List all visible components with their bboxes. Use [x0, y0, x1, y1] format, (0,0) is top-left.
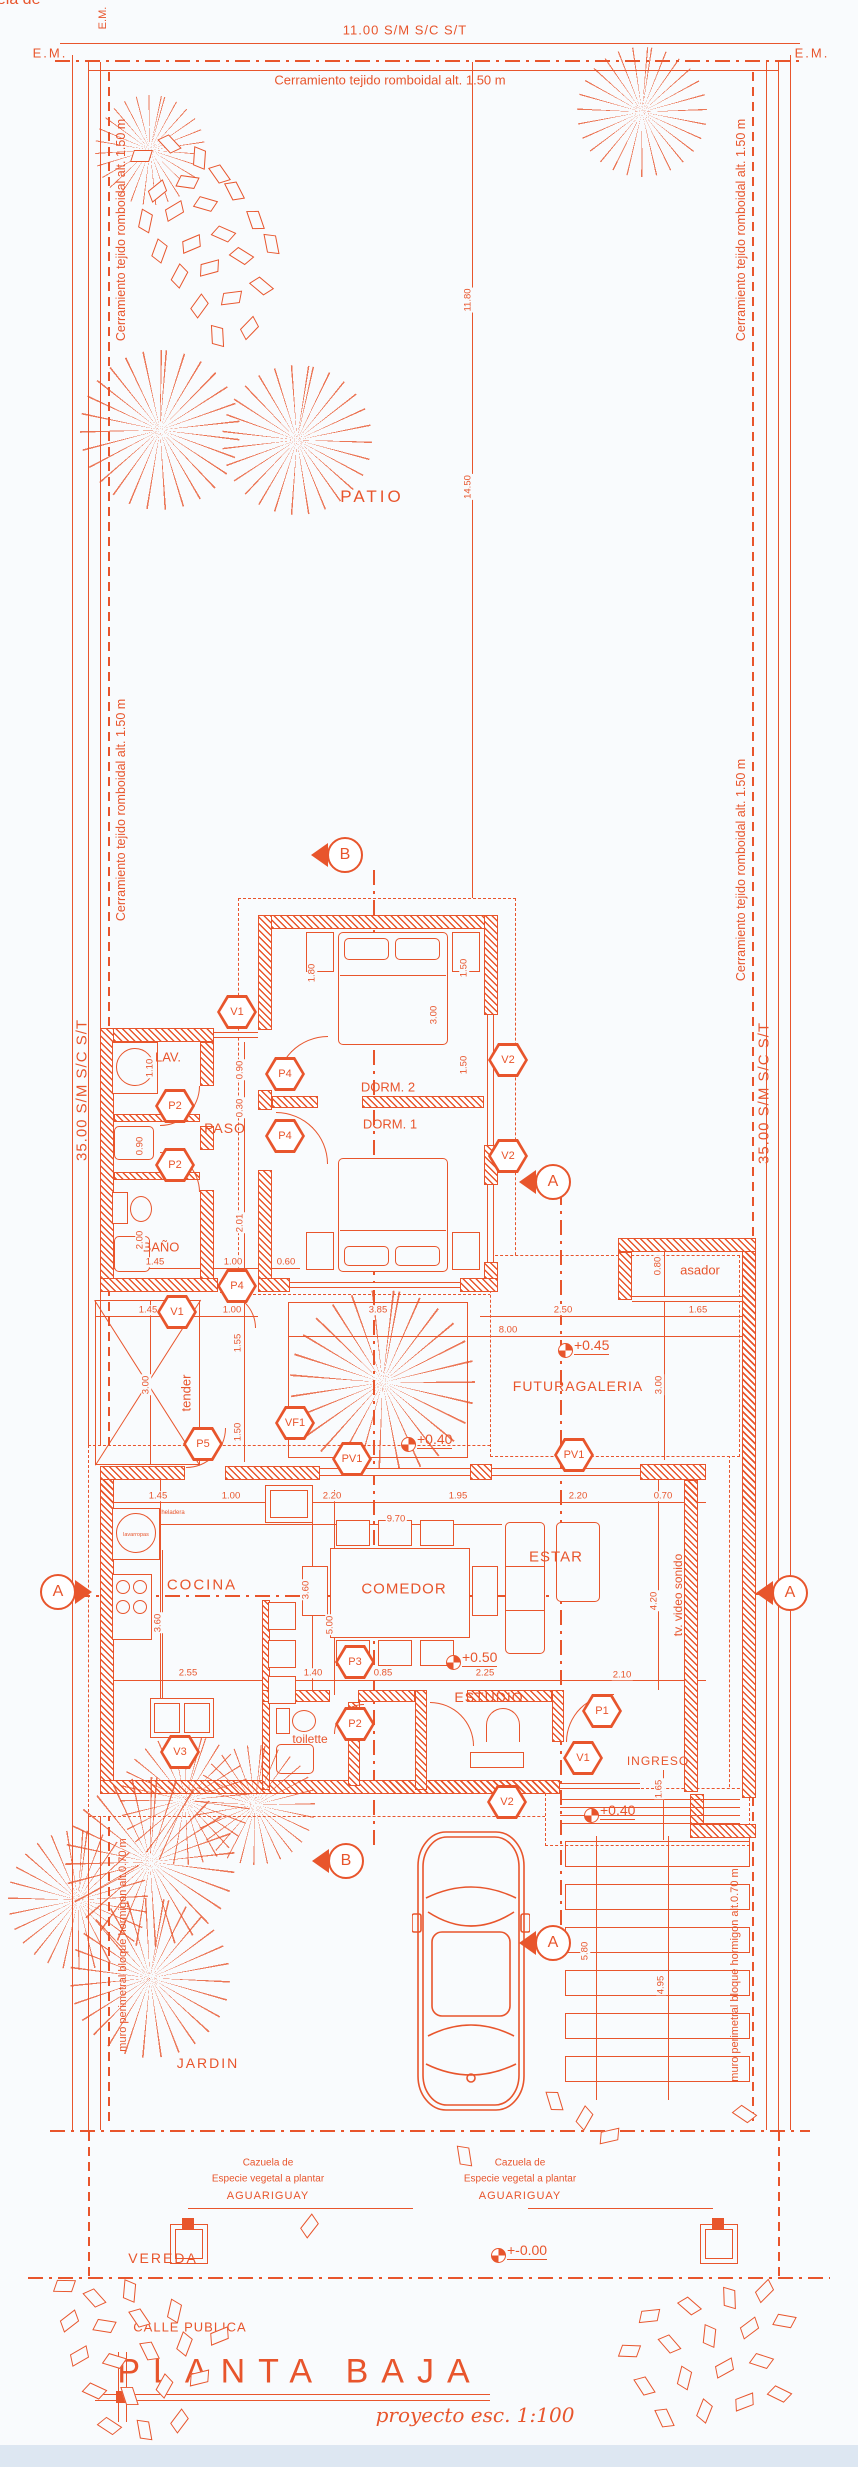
- street-label: CALLE PUBLICA: [133, 2320, 246, 2335]
- fridge-inner: [270, 1490, 308, 1518]
- leaf-icon: [735, 2392, 753, 2411]
- level-mark: +0.40: [584, 1808, 599, 1823]
- opening-tag-pv1: PV1: [554, 1438, 594, 1472]
- level-icon: [491, 2248, 506, 2263]
- pillow: [344, 938, 389, 960]
- property-line: [55, 60, 800, 62]
- section-marker-a: A: [535, 1925, 571, 1961]
- toilet-tank: [276, 1708, 290, 1734]
- title-rule: [95, 2400, 490, 2401]
- leaf-icon: [170, 2408, 189, 2434]
- wall: [200, 1042, 214, 1086]
- wall: [258, 1278, 290, 1292]
- leaf-icon: [654, 2409, 675, 2428]
- leaf-icon: [128, 2308, 151, 2327]
- lot-line: [88, 70, 778, 71]
- wall: [690, 1824, 756, 1838]
- wall: [640, 1464, 706, 1480]
- pillow: [395, 938, 440, 960]
- dimension-line: [480, 1316, 742, 1317]
- leaf-icon: [715, 2357, 734, 2379]
- opening-tag-p4: P4: [217, 1269, 257, 1303]
- chair: [420, 1520, 454, 1546]
- dimension-label: 3.60: [153, 1613, 163, 1634]
- wall: [484, 915, 498, 1015]
- fence-note: Cerramiento tejido romboidal alt. 1.50 m: [734, 119, 748, 341]
- dimension-label: 2.55: [178, 1668, 199, 1678]
- chair: [378, 1640, 412, 1666]
- car: [412, 1828, 530, 2114]
- opening-tag-v1: V1: [157, 1295, 197, 1329]
- nightstand: [452, 1232, 480, 1270]
- title-rule: [95, 2394, 490, 2395]
- leaf-icon: [755, 2279, 774, 2304]
- perimeter-wall-note: muro perimetral bloque hormigon alt.0.70…: [729, 1868, 741, 2081]
- planter-marker: [182, 2218, 194, 2230]
- room-label-patio: PATIO: [340, 487, 404, 507]
- burner: [133, 1580, 147, 1594]
- room-label-comedor: COMEDOR: [361, 1581, 446, 1598]
- paver-strip: [565, 2013, 750, 2039]
- dimension-label: 1.50: [459, 1055, 469, 1076]
- window: [214, 1032, 258, 1038]
- wall: [100, 1466, 185, 1480]
- leader-line: [528, 2208, 713, 2209]
- leader-line: [188, 2208, 413, 2209]
- dimension-label: 1.45: [138, 1305, 159, 1315]
- burner: [116, 1580, 130, 1594]
- fence-line: [752, 72, 754, 2126]
- track-line: [596, 1836, 597, 2100]
- section-arrow-icon: [519, 1170, 536, 1194]
- leaf-icon: [657, 2334, 681, 2353]
- blanket-line: [340, 1230, 446, 1231]
- level-icon: [584, 1808, 599, 1823]
- opening-tag-v2: V2: [487, 1785, 527, 1819]
- dimension-label: 0.90: [135, 1136, 145, 1157]
- side-dimension-label: 35.00 S/M S/C S/T: [74, 1019, 91, 1161]
- sink-basin: [184, 1703, 210, 1733]
- dimension-label: 1.00: [223, 1257, 244, 1267]
- window: [290, 1282, 460, 1288]
- counter-stool: [268, 1602, 296, 1630]
- leaf-icon: [82, 2382, 108, 2399]
- dimension-label: 2.20: [322, 1491, 343, 1501]
- sofa-cushion-line: [506, 1610, 544, 1611]
- fence-note: Cerramiento tejido romboidal alt. 1.50 m: [114, 699, 128, 921]
- leaf-icon: [130, 150, 153, 162]
- toilet-bowl: [292, 1710, 316, 1732]
- leaf-icon: [767, 2385, 793, 2402]
- room-label-dorm2: DORM. 2: [361, 1080, 415, 1095]
- level-mark: +-0.00: [491, 2248, 506, 2263]
- wall: [362, 1096, 484, 1108]
- dimension-label: 1.45: [145, 1257, 166, 1267]
- planting-note: Cazuela de: [495, 2158, 546, 2169]
- opening-tag-vf1: VF1: [275, 1406, 315, 1440]
- dimension-line: [790, 55, 791, 2130]
- dimension-label: 1.00: [222, 1305, 243, 1315]
- section-marker-a: A: [772, 1575, 808, 1611]
- leaf-icon: [723, 2287, 736, 2309]
- toilet-bowl: [130, 1196, 152, 1222]
- fence-note: Cerramiento tejido romboidal alt. 1.50 m: [274, 73, 505, 88]
- leaf-icon: [92, 2319, 116, 2333]
- dimension-line: [664, 1240, 665, 1460]
- opening-tag-v2: V2: [488, 1043, 528, 1077]
- dimension-label: 4.20: [649, 1591, 659, 1612]
- burner: [133, 1600, 147, 1614]
- toilet-tank: [112, 1192, 128, 1224]
- section-arrow-icon: [75, 1580, 92, 1604]
- municipal-line: [50, 2130, 810, 2132]
- dimension-label: 3.60: [301, 1580, 311, 1601]
- dimension-line: [658, 1480, 659, 1690]
- dimension-label: 5.80: [580, 1941, 590, 1962]
- dimension-label: 8.00: [498, 1325, 519, 1335]
- dimension-label: 1.00: [221, 1491, 242, 1501]
- dimension-label: 1.50: [233, 1422, 243, 1443]
- dimension-label: 1.50: [459, 958, 469, 979]
- sink-basin: [154, 1703, 180, 1733]
- opening-tag-p2: P2: [155, 1089, 195, 1123]
- opening-tag-p2: P2: [335, 1707, 375, 1741]
- paver-strip: [565, 1841, 750, 1867]
- wall: [552, 1690, 564, 1742]
- wall: [100, 1278, 218, 1292]
- front-dimension-label: 11.00 S/M S/C S/T: [343, 23, 467, 38]
- leaf-icon: [53, 2280, 76, 2292]
- opening-tag-v3: V3: [160, 1735, 200, 1769]
- wall: [618, 1238, 756, 1252]
- planting-note: AGUARIGUAY: [227, 2190, 310, 2202]
- leaf-icon: [60, 2309, 79, 2333]
- dimension-label: 0.80: [653, 1256, 663, 1277]
- room-label-estudio: ESTUDIO: [454, 1689, 523, 1705]
- wall: [258, 1090, 272, 1110]
- wall: [358, 1690, 415, 1702]
- level-icon: [558, 1343, 573, 1358]
- blanket-line: [340, 975, 446, 976]
- dimension-line: [288, 1336, 742, 1337]
- floor-plan-drawing: 11.00 S/M S/C S/T E.M. E.M. E.M. Cerrami…: [0, 0, 858, 2467]
- leaf-icon: [137, 2420, 153, 2440]
- dimension-line: [112, 1502, 706, 1503]
- window: [487, 1015, 494, 1145]
- leaf-icon: [772, 2314, 797, 2328]
- dimension-label: 1.65: [688, 1305, 709, 1315]
- wall: [200, 1190, 214, 1292]
- leaf-icon: [457, 2146, 472, 2167]
- opening-tag-p5: P5: [183, 1427, 223, 1461]
- level-mark: +0.45: [558, 1343, 573, 1358]
- roof-eave-outline: [490, 1255, 740, 1457]
- opening-tag-v1: V1: [217, 995, 257, 1029]
- dimension-label: 0.85: [373, 1668, 394, 1678]
- leaf-icon: [740, 2316, 759, 2339]
- section-arrow-icon: [311, 843, 328, 867]
- leaf-icon: [123, 2279, 136, 2303]
- nightstand: [306, 1232, 334, 1270]
- sofa-cushion-line: [506, 1566, 544, 1567]
- sidewalk-label: VEREDA: [128, 2250, 198, 2266]
- wall: [684, 1480, 698, 1792]
- tree-planter-inner: [705, 2229, 733, 2259]
- room-label-jardin: JARDIN: [177, 2055, 240, 2071]
- room-label-cocina: COCINA: [167, 1577, 237, 1594]
- opening-tag-p1: P1: [582, 1694, 622, 1728]
- lot-line-extension: [778, 2132, 780, 2282]
- chair: [336, 1520, 370, 1546]
- room-label-estar: ESTAR: [529, 1549, 583, 1566]
- pillow: [395, 1246, 440, 1266]
- tv-note: tv. video sonido: [671, 1554, 685, 1637]
- counter-stool: [268, 1676, 296, 1704]
- wall: [258, 1170, 272, 1292]
- opening-tag-v2: V2: [488, 1139, 528, 1173]
- dimension-label: 2.00: [135, 1230, 145, 1251]
- leaf-icon: [618, 2345, 641, 2358]
- leaf-icon: [576, 2105, 594, 2131]
- fence-note: Cerramiento tejido romboidal alt. 1.50 m: [114, 119, 128, 341]
- lot-line: [778, 62, 779, 2130]
- level-icon: [446, 1655, 461, 1670]
- leaf-icon: [633, 2376, 656, 2395]
- window: [560, 1783, 640, 1789]
- room-label-dorm1: DORM. 1: [363, 1117, 417, 1132]
- room-label-ingreso: INGRESO: [627, 1754, 689, 1768]
- opening-tag-v1: V1: [563, 1741, 603, 1775]
- dimension-label: 0.90: [235, 1060, 245, 1081]
- sofa: [505, 1522, 545, 1654]
- planting-note: Especie vegetal a plantar: [464, 2174, 576, 2185]
- section-arrow-icon: [756, 1581, 773, 1605]
- level-icon: [401, 1437, 416, 1452]
- leaf-icon: [677, 2365, 692, 2390]
- opening-tag-p3: P3: [335, 1645, 375, 1679]
- step-line: [560, 1823, 740, 1824]
- dimension-label: 1.95: [448, 1491, 469, 1501]
- room-label-futura-galeria: FUTURAGALERIA: [513, 1378, 643, 1394]
- dimension-label: 1.45: [148, 1491, 169, 1501]
- wall: [258, 915, 272, 1030]
- appliance-label-fridge: heladera: [161, 1510, 184, 1516]
- wall: [460, 1278, 498, 1292]
- desk: [470, 1752, 524, 1768]
- scale-note: proyecto esc. 1:100: [376, 2403, 575, 2427]
- level-mark: +0.50: [446, 1655, 461, 1670]
- dimension-label: 3.85: [368, 1305, 389, 1315]
- corner-mark-label: E.M.: [97, 7, 109, 30]
- paver-strip: [565, 2056, 750, 2082]
- room-label-asador: asador: [680, 1263, 720, 1278]
- leaf-icon: [545, 2092, 563, 2110]
- chair: [472, 1566, 498, 1616]
- section-arrow-icon: [312, 1849, 329, 1873]
- window: [632, 1296, 742, 1302]
- side-dimension-label: 35.00 S/M S/C S/T: [756, 1022, 773, 1164]
- corner-mark-label: E.M.: [33, 46, 68, 61]
- planting-note: Especie vegetal a plantar: [212, 2174, 324, 2185]
- leaf-icon: [300, 2213, 319, 2238]
- pillow: [344, 1246, 389, 1266]
- dimension-label: 3.00: [141, 1375, 151, 1396]
- dimension-label: 14.50: [463, 474, 473, 500]
- dimension-label: 0.30: [235, 1098, 245, 1119]
- dimension-label: 1.10: [145, 1058, 155, 1079]
- dimension-label: 9.70: [386, 1514, 407, 1524]
- paver-strip: [565, 1884, 750, 1910]
- room-label-lav: LAV.: [155, 1050, 181, 1065]
- corner-mark-label: E.M.: [795, 46, 830, 61]
- wall: [225, 1466, 320, 1480]
- dimension-label: 11.80: [463, 287, 473, 312]
- leaf-icon: [82, 2288, 106, 2307]
- dimension-label: 5.00: [325, 1615, 335, 1636]
- dimension-label: 2.50: [553, 1305, 574, 1315]
- dimension-label: 1.55: [233, 1333, 243, 1354]
- opening-tag-p4: P4: [265, 1119, 305, 1153]
- section-marker-b: B: [328, 1843, 364, 1879]
- leaf-icon: [639, 2309, 661, 2323]
- leaf-icon: [749, 2353, 774, 2369]
- wall: [258, 915, 498, 929]
- planting-note: AGUARIGUAY: [479, 2190, 562, 2202]
- wall: [618, 1252, 632, 1300]
- dimension-label: 1.65: [654, 1779, 664, 1800]
- room-label-bano: BAÑO: [143, 1240, 180, 1255]
- opening-tag-p4: P4: [265, 1057, 305, 1091]
- drawing-title: PLANTA BAJA: [117, 2353, 482, 2392]
- page-edge-band: [0, 2445, 858, 2467]
- dimension-label: 3.00: [429, 1005, 439, 1026]
- perimeter-wall-note: muro perimetral bloque hormigon alt.0.70…: [117, 1838, 129, 2051]
- dimension-label: 4.95: [656, 1975, 666, 1996]
- tree-icon: [80, 350, 240, 510]
- step-line: [560, 1799, 740, 1800]
- dimension-label: 3.00: [654, 1375, 664, 1396]
- fence-note: Cerramiento tejido romboidal alt. 1.50 m: [734, 759, 748, 981]
- dimension-label: 1.40: [303, 1668, 324, 1678]
- dimension-label: 0.60: [276, 1257, 297, 1267]
- dimension-label: 2.10: [612, 1670, 633, 1680]
- wall: [470, 1464, 492, 1480]
- track-line: [668, 1836, 669, 2100]
- leaf-icon: [677, 2297, 702, 2316]
- dimension-label: 0.70: [653, 1491, 674, 1501]
- dimension-label: 1.80: [307, 963, 317, 984]
- room-label-tender: tender: [179, 1375, 194, 1412]
- leaf-icon: [211, 325, 224, 347]
- wall: [742, 1238, 756, 1798]
- lot-line-extension: [88, 2132, 90, 2282]
- section-arrow-icon: [519, 1931, 536, 1955]
- level-mark: +0.40: [401, 1437, 416, 1452]
- dimension-label: 2.25: [475, 1668, 496, 1678]
- section-marker-a: A: [535, 1164, 571, 1200]
- front-dimension-line: [60, 43, 800, 44]
- burner: [116, 1600, 130, 1614]
- paver-strip: [565, 1927, 750, 1953]
- planting-note: Cazuela de: [243, 2158, 294, 2169]
- planter-marker: [712, 2218, 724, 2230]
- planting-note: Cazuela de: [0, 0, 40, 9]
- desk-chair: [486, 1708, 520, 1742]
- leaf-icon: [193, 146, 206, 170]
- section-marker-b: B: [327, 837, 363, 873]
- room-label-paso: PASO: [204, 1120, 246, 1136]
- window: [487, 1185, 494, 1262]
- dimension-label: 2.01: [235, 1213, 245, 1234]
- leaf-icon: [70, 2345, 89, 2367]
- wall: [100, 1028, 214, 1042]
- wall: [272, 1096, 318, 1108]
- curb-line: [28, 2277, 830, 2279]
- dimension-label: 2.20: [568, 1491, 589, 1501]
- leaf-icon: [703, 2324, 717, 2348]
- section-marker-a: A: [40, 1574, 76, 1610]
- wall: [415, 1690, 427, 1790]
- room-label-toilette: toilette: [292, 1732, 327, 1746]
- counter-stool: [268, 1640, 296, 1668]
- appliance-label-washer: lavarropas: [123, 1532, 149, 1538]
- opening-tag-pv1: PV1: [332, 1442, 372, 1476]
- opening-tag-p2: P2: [155, 1148, 195, 1182]
- leaf-icon: [696, 2398, 713, 2424]
